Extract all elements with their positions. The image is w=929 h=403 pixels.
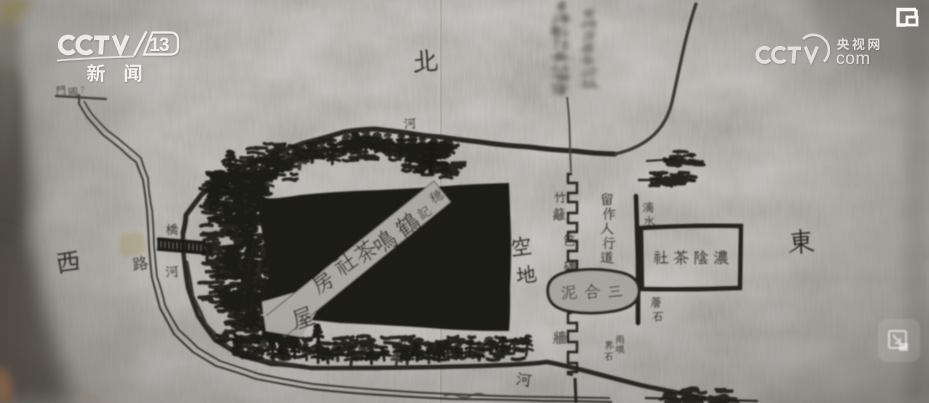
svg-text:com: com (836, 48, 871, 68)
svg-text:13: 13 (149, 35, 169, 56)
